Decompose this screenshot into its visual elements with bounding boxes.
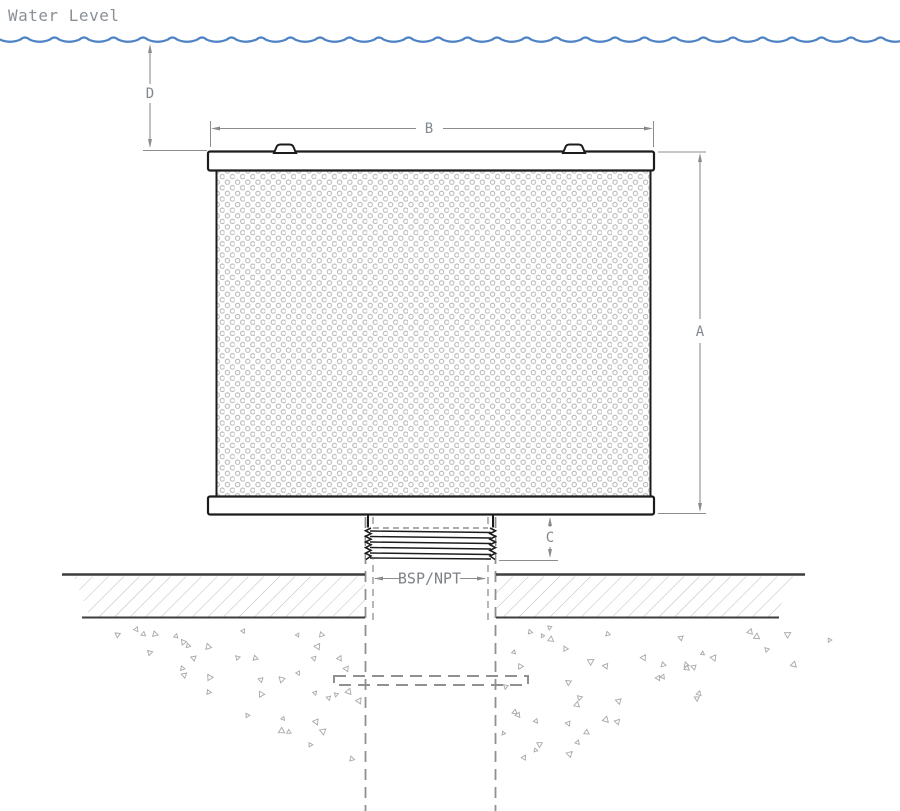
dimension-b: B xyxy=(211,121,654,147)
thread-standard-label: BSP/NPT xyxy=(398,570,461,588)
dim-c-arrow-up xyxy=(548,517,552,526)
strainer-drawing-svg: Water Level xyxy=(0,0,900,811)
dimension-c: C xyxy=(499,517,558,561)
dim-a-arrow-up xyxy=(698,153,702,162)
dim-b-arrow-left xyxy=(211,127,220,131)
soil-stipple xyxy=(115,626,832,761)
thread-standard-callout: BSP/NPT xyxy=(374,570,486,588)
dim-d-arrow-up xyxy=(148,44,152,53)
dim-a-label: A xyxy=(696,324,705,340)
dim-c-label: C xyxy=(546,530,554,546)
dimension-d: D xyxy=(143,44,207,151)
water-wave-line xyxy=(0,38,900,42)
bottom-plate xyxy=(208,497,654,515)
water-level-label: Water Level xyxy=(8,6,119,25)
thread-connection xyxy=(366,514,496,560)
top-plate xyxy=(208,152,654,171)
dim-d-label: D xyxy=(146,86,154,102)
dim-c-arrow-down xyxy=(548,549,552,558)
dimension-a: A xyxy=(658,152,706,514)
strainer-unit xyxy=(208,145,654,515)
thread-callout-arrow-left xyxy=(374,577,383,581)
buried-pipe xyxy=(334,517,528,811)
buried-flange-hidden-outline xyxy=(334,676,528,685)
dim-a-arrow-down xyxy=(698,503,702,512)
slab-hatch-left xyxy=(74,577,365,617)
thread-callout-arrow-right xyxy=(477,577,486,581)
perforated-mesh-body xyxy=(217,170,651,498)
soil-stipple-triangles xyxy=(115,626,832,761)
right-bolt-head xyxy=(563,145,585,154)
dim-d-arrow-down xyxy=(148,139,152,148)
slab-hatch-right xyxy=(496,577,797,617)
dim-b-label: B xyxy=(425,121,433,137)
dim-b-arrow-right xyxy=(644,127,653,131)
suction-strainer-technical-drawing: Water Level xyxy=(0,0,900,811)
left-bolt-head xyxy=(274,145,296,154)
water-surface: Water Level xyxy=(0,6,900,42)
